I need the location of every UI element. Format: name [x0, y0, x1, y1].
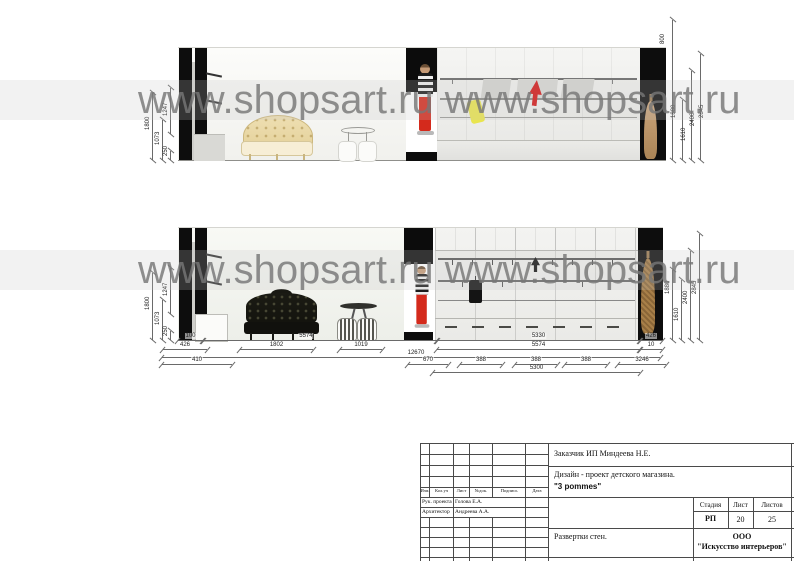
dim-label: 1073	[155, 312, 161, 325]
watermark-band: www.shopsart.ru www.shopsart.ru	[0, 250, 794, 290]
table-round	[341, 127, 375, 134]
child-shoes	[417, 131, 434, 135]
pouf-striped	[357, 318, 377, 341]
dim-label: 1073	[155, 132, 161, 145]
dim-label: 670	[422, 357, 434, 363]
tb-col-koluch: Кол.уч	[430, 488, 453, 493]
pouf	[358, 141, 377, 162]
tb-brand: "3 pommes"	[554, 482, 601, 491]
tb-company-1: ООО	[693, 532, 791, 541]
tb-line	[420, 537, 548, 538]
tb-stage-label: Стадия	[693, 501, 728, 509]
dim-label: 10	[647, 342, 656, 348]
table-round	[340, 303, 377, 309]
tb-line	[548, 466, 794, 467]
drawer-handle	[553, 326, 565, 328]
dim-label: 1800	[145, 297, 151, 310]
tb-stage-value: РП	[693, 514, 728, 523]
tb-sheet-label: Лист	[728, 501, 753, 509]
tb-col-data: Дата	[526, 488, 548, 493]
tb-col-podpis: Подпись	[493, 488, 525, 493]
dim: 3246	[618, 364, 666, 365]
tb-line	[548, 497, 794, 498]
dim: 5574	[437, 349, 640, 350]
tb-line	[420, 517, 548, 518]
dim-label: 388	[530, 357, 542, 363]
tb-line	[469, 517, 470, 561]
tb-border	[791, 443, 792, 561]
tb-client: Заказчик ИП Миндеева Н.Е.	[554, 449, 650, 458]
tb-col-izm: Изм.	[420, 488, 430, 493]
dim-label: 12670	[407, 350, 426, 356]
dim: 426	[163, 349, 207, 350]
sofa-baroque-beige	[241, 115, 313, 160]
tb-col-list: Лист	[454, 488, 469, 493]
tb-project: Дизайн - проект детского магазина.	[554, 470, 675, 479]
watermark-band: www.shopsart.ru www.shopsart.ru	[0, 80, 794, 120]
dim-label: 250	[163, 146, 169, 156]
dim-label: 800	[660, 34, 666, 44]
dim-label: 426	[645, 333, 657, 339]
column-black	[404, 332, 433, 340]
base-cabinet	[195, 314, 228, 342]
dim: 388	[460, 364, 502, 365]
dim: 10	[640, 349, 662, 350]
tb-line	[420, 527, 548, 528]
tb-border	[420, 443, 794, 444]
dim: 5330	[437, 340, 640, 341]
tb-line	[525, 443, 526, 561]
drawer-handle	[445, 326, 457, 328]
tb-line	[420, 547, 548, 548]
hanging-rail	[438, 300, 635, 301]
tb-line	[420, 476, 548, 477]
dim-label: 2400	[683, 291, 689, 304]
dim-label: 1019	[353, 342, 368, 348]
tb-line	[693, 511, 794, 512]
tb-sheets-label: Листов	[753, 501, 791, 509]
tb-sheet-title: Развертки стен.	[554, 532, 607, 541]
dim: 410	[162, 364, 232, 365]
dim-label: 410	[191, 357, 203, 363]
column-black	[406, 152, 437, 161]
tb-line	[420, 454, 548, 455]
child-red-pants	[416, 295, 426, 325]
tb-line	[548, 443, 549, 561]
dim-label: 1802	[269, 342, 284, 348]
dim	[170, 331, 171, 340]
drawer-handle	[580, 326, 592, 328]
dim: 100	[178, 340, 203, 341]
tb-line	[420, 465, 548, 466]
base-cabinet	[194, 134, 225, 161]
child-shoes	[414, 324, 429, 327]
tb-company-2: "Искусство интерьеров"	[693, 542, 791, 551]
dim-label: 1610	[674, 308, 680, 321]
dim-label: 100	[184, 333, 196, 339]
dim-label: 3246	[634, 357, 649, 363]
tb-role-label: Рук. проекта	[422, 499, 452, 505]
tb-line	[420, 557, 794, 558]
dim: 1019	[340, 349, 382, 350]
dim	[170, 151, 171, 160]
tb-line	[548, 528, 794, 529]
tb-role-label: Архитектор	[422, 509, 450, 515]
dim-label: 1610	[681, 128, 687, 141]
dim-label: 5574	[531, 342, 546, 348]
drawing-sheet: 1800 1073 250 1247 800 1880 1610 2400 28…	[0, 0, 794, 561]
shelf-base	[437, 141, 640, 160]
drawer-handle	[526, 326, 538, 328]
tb-role-name: Андреева А.А.	[455, 509, 489, 515]
dim-label: 388	[580, 357, 592, 363]
tb-line	[453, 443, 454, 561]
tb-role-name: Голова Е.А.	[455, 499, 482, 505]
drawer-top-line	[435, 318, 638, 319]
dim-label: 5574	[298, 333, 313, 339]
drawer-handle	[607, 326, 619, 328]
tb-sheet-value: 20	[728, 515, 753, 524]
wardrobe-top-row	[435, 228, 638, 250]
dim-label: 5300	[529, 365, 544, 371]
tb-border	[420, 443, 421, 561]
dim: 670	[408, 364, 448, 365]
tb-line	[420, 497, 548, 498]
drawer-handle	[472, 326, 484, 328]
dim-label: 426	[179, 342, 191, 348]
dim: 5574	[203, 340, 437, 341]
dim: 388	[565, 364, 607, 365]
dim-label: 388	[475, 357, 487, 363]
tb-sheets-value: 25	[753, 515, 791, 524]
dim-label: 250	[163, 326, 169, 336]
dim: 426	[640, 340, 662, 341]
title-block: Изм. Кол.уч Лист №док. Подпись Дата Рук.…	[420, 443, 794, 561]
tb-line	[429, 517, 430, 561]
tb-col-ndok: №док.	[470, 488, 492, 493]
dim: 5300	[433, 372, 640, 373]
tb-line	[492, 517, 493, 561]
tb-line	[420, 507, 548, 508]
pouf-striped	[337, 318, 357, 341]
dim-label: 5330	[531, 333, 546, 339]
pouf	[338, 141, 357, 162]
dim: 1802	[240, 349, 313, 350]
drawer-handle	[499, 326, 511, 328]
